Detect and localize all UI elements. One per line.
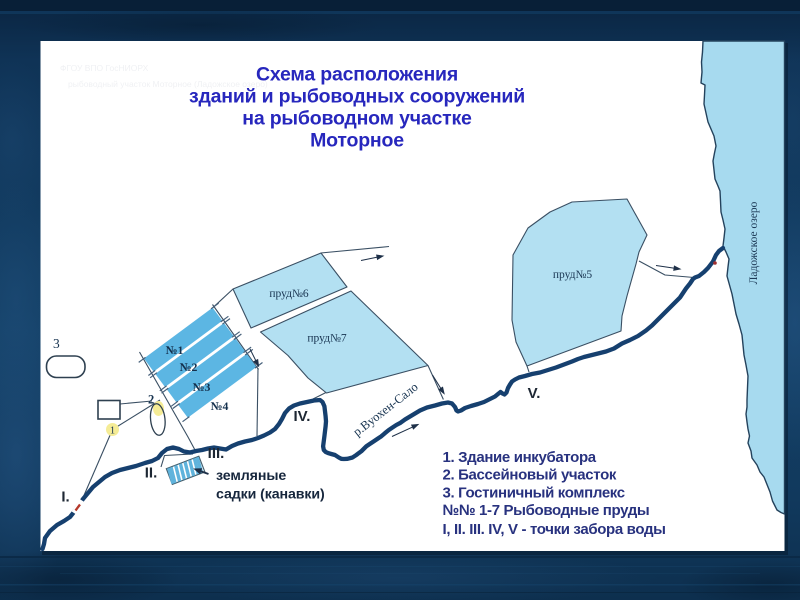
svg-text:пруд№7: пруд№7 — [307, 333, 347, 345]
svg-text:2. Бассейновый участок: 2. Бассейновый участок — [443, 467, 617, 484]
svg-text:3. Гостиничный комплекс: 3. Гостиничный комплекс — [443, 484, 625, 501]
svg-text:Ладожское озеро: Ладожское озеро — [748, 201, 760, 284]
svg-text:III.: III. — [208, 445, 225, 462]
svg-text:2: 2 — [148, 393, 154, 407]
svg-text:Моторное: Моторное — [310, 130, 404, 152]
svg-text:пруд№5: пруд№5 — [553, 269, 593, 281]
svg-text:Схема расположения: Схема расположения — [256, 64, 458, 86]
svg-text:пруд№6: пруд№6 — [269, 288, 309, 300]
svg-text:II.: II. — [145, 464, 158, 481]
svg-text:№4: №4 — [211, 399, 229, 413]
svg-text:I.: I. — [61, 488, 69, 505]
svg-text:1. Здание инкубатора: 1. Здание инкубатора — [443, 449, 597, 466]
svg-text:V.: V. — [528, 385, 541, 402]
svg-text:садки (канавки): садки (канавки) — [216, 486, 325, 502]
svg-text:№1: №1 — [166, 343, 184, 357]
svg-text:№3: №3 — [193, 380, 211, 394]
svg-text:IV.: IV. — [294, 408, 311, 425]
svg-text:№№ 1-7 Рыбоводные пруды: №№ 1-7 Рыбоводные пруды — [443, 502, 650, 519]
svg-text:на рыбоводном участке: на рыбоводном участке — [242, 108, 472, 130]
svg-text:№2: №2 — [180, 360, 198, 374]
svg-text:I, II. III. IV, V - точки забо: I, II. III. IV, V - точки забора воды — [443, 521, 666, 538]
svg-text:земляные: земляные — [216, 468, 286, 484]
svg-text:1: 1 — [110, 426, 115, 437]
svg-text:3: 3 — [53, 336, 60, 351]
svg-text:зданий и рыбоводных сооружений: зданий и рыбоводных сооружений — [189, 86, 525, 108]
svg-text:ФГОУ ВПО ГосНИОРХ: ФГОУ ВПО ГосНИОРХ — [60, 63, 149, 73]
